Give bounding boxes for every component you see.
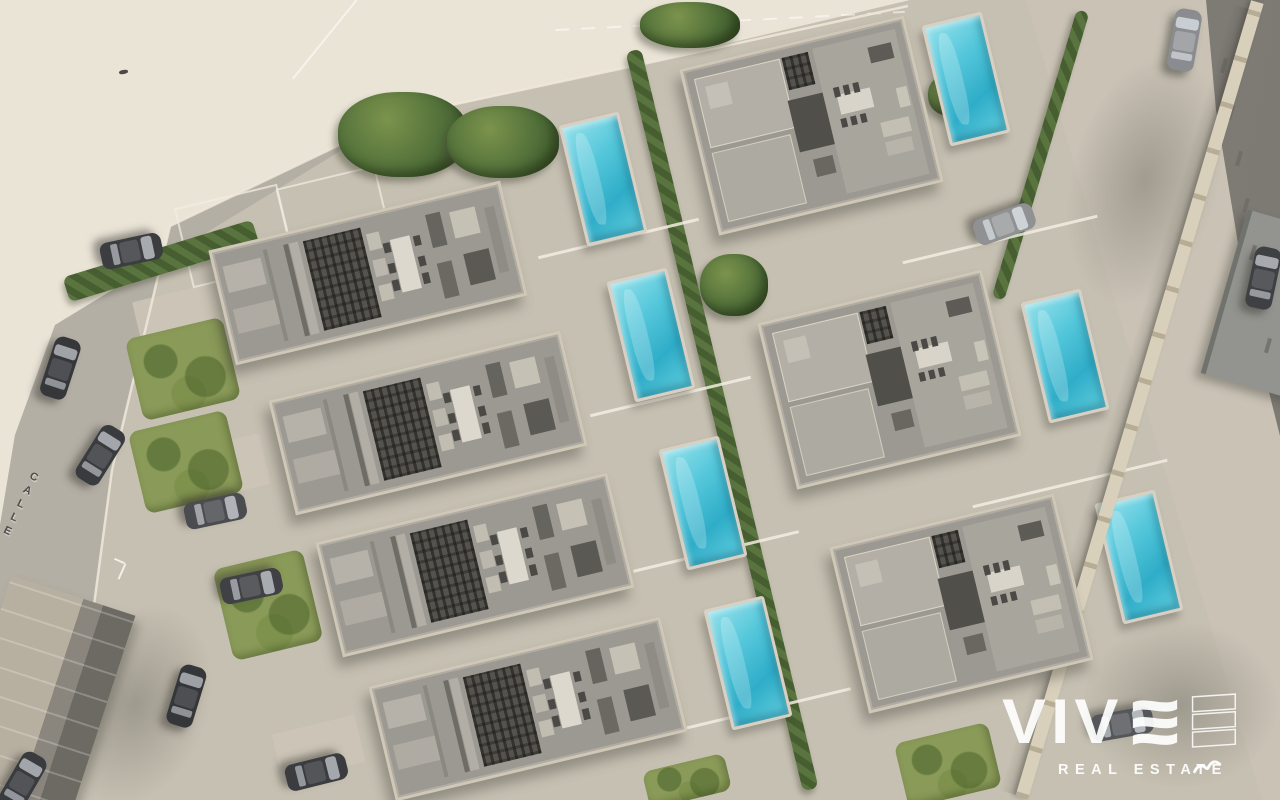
roof-detail <box>480 550 496 569</box>
brand-logo-e-icon <box>1131 695 1179 747</box>
roof-detail <box>437 260 460 298</box>
roof-detail <box>523 399 556 436</box>
roof-detail <box>263 249 289 342</box>
roof-detail <box>520 527 529 538</box>
car-roof <box>1250 268 1275 291</box>
car-roof <box>1172 30 1196 52</box>
roof-detail <box>473 523 489 542</box>
roof-detail <box>712 134 807 222</box>
roof-detail <box>223 257 266 292</box>
roof-detail <box>423 685 449 778</box>
roof-detail <box>478 405 487 416</box>
roof-detail <box>532 504 554 540</box>
brand-tagline: REAL ESTATE <box>1058 762 1272 778</box>
parked-car <box>970 201 1037 248</box>
pool-water-highlight <box>1034 310 1074 403</box>
garden-lawn <box>894 722 1003 800</box>
car-window <box>1175 17 1199 31</box>
roof-detail <box>781 52 815 90</box>
brand-watermark: VIV REAL ESTATE <box>1002 688 1272 778</box>
roof-detail <box>582 708 591 719</box>
pool-water-highlight <box>1108 511 1148 604</box>
garden-bush <box>700 254 768 316</box>
long-villa-roof <box>368 617 687 800</box>
roof-detail <box>366 231 382 250</box>
roof-detail <box>859 306 893 344</box>
street-marking <box>114 558 125 564</box>
pool-water-highlight <box>672 457 712 550</box>
garden-bush <box>640 2 740 48</box>
roof-detail <box>556 498 588 530</box>
roof-detail <box>330 549 373 584</box>
roof-detail <box>585 648 607 684</box>
car-window <box>109 244 121 266</box>
car-roof <box>202 499 225 524</box>
roof-detail <box>293 450 342 484</box>
garden-bush <box>447 106 559 178</box>
car-window <box>1254 254 1278 269</box>
roof-detail <box>340 592 389 626</box>
square-villa-roof <box>757 269 1022 489</box>
roof-detail <box>383 693 426 728</box>
car-window <box>324 756 340 781</box>
roof-detail <box>426 381 442 400</box>
roof-detail <box>509 356 541 388</box>
pool-water-highlight <box>620 289 660 382</box>
brand-logo-text: VIV <box>1002 689 1123 752</box>
roof-detail <box>790 388 885 476</box>
car-window <box>193 504 205 526</box>
car-window <box>1249 289 1271 301</box>
roof-detail <box>449 206 481 238</box>
roof-detail <box>425 212 447 248</box>
roof-detail <box>373 258 389 277</box>
roof-detail <box>623 685 656 722</box>
roof-detail <box>544 552 567 590</box>
swimming-pool <box>703 595 792 730</box>
pool-water-highlight <box>572 133 612 226</box>
roof-detail <box>862 612 957 700</box>
roof-detail <box>233 300 282 334</box>
roof-detail <box>485 362 507 398</box>
car-window <box>224 495 239 519</box>
swimming-pool <box>921 11 1010 146</box>
roof-detail <box>418 255 427 266</box>
roof-detail <box>578 691 587 702</box>
roof-detail <box>433 408 449 427</box>
car-window <box>260 570 275 594</box>
roof-detail <box>370 541 396 634</box>
roof-detail <box>497 410 520 448</box>
pool-water-highlight <box>717 617 757 710</box>
roof-detail <box>283 407 326 442</box>
car-window <box>1170 51 1191 62</box>
swimming-pool <box>1020 288 1109 423</box>
roof-detail <box>323 399 349 492</box>
roof-detail <box>482 422 491 433</box>
street-marking <box>118 563 127 579</box>
square-villa-roof <box>679 15 944 235</box>
car-window <box>140 235 155 259</box>
long-villa-roof <box>315 473 634 658</box>
roof-detail <box>526 667 542 686</box>
roof-detail <box>891 408 915 430</box>
roof-detail <box>422 272 431 283</box>
roof-detail <box>393 736 442 770</box>
car-roof <box>303 760 326 785</box>
aerial-render-scene: CALLE VIV REAL ESTATE <box>0 0 1280 800</box>
roof-detail <box>573 671 582 682</box>
roof-detail <box>597 696 620 734</box>
car-roof <box>238 574 261 599</box>
swimming-pool <box>558 111 647 246</box>
roof-detail <box>525 547 534 558</box>
roof-detail <box>533 694 549 713</box>
brand-logo-building-icon <box>1187 692 1239 750</box>
roof-detail <box>463 249 496 286</box>
roof-detail <box>931 530 965 568</box>
garden-lawn <box>642 753 733 800</box>
roof-detail <box>413 235 422 246</box>
roof-detail <box>813 154 837 176</box>
roof-detail <box>473 385 482 396</box>
roof-detail <box>609 642 641 674</box>
roof-detail <box>529 564 538 575</box>
car-roof <box>118 239 141 264</box>
car-window <box>229 579 241 601</box>
brand-logo-row: VIV <box>1002 688 1272 754</box>
roof-detail <box>963 632 987 654</box>
roof-detail <box>570 541 603 578</box>
